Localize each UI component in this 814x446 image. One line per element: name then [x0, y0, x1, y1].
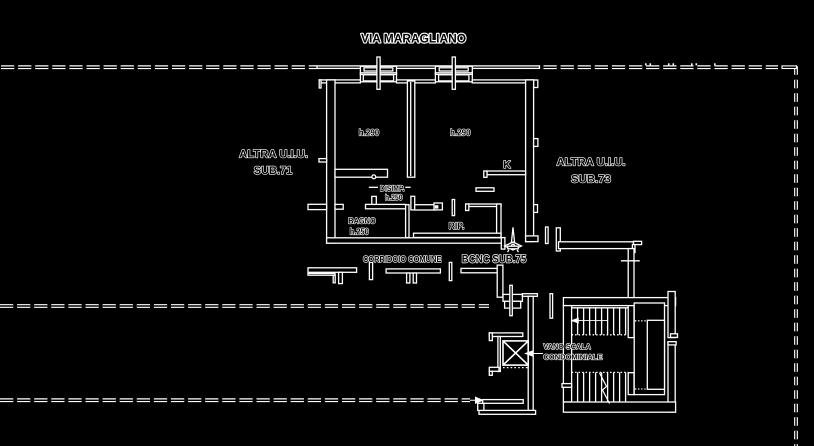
svg-text:CONDOMINIALE: CONDOMINIALE [543, 352, 602, 361]
svg-text:RIP.: RIP. [449, 221, 465, 232]
svg-text:ALTRA U.I.U.: ALTRA U.I.U. [239, 148, 308, 160]
svg-text:h.290: h.290 [359, 128, 380, 138]
svg-text:VANO SCALA: VANO SCALA [543, 342, 591, 351]
svg-text:h.290: h.290 [450, 128, 471, 138]
svg-text:K: K [503, 159, 511, 171]
svg-text:ALTRA U.I.U.: ALTRA U.I.U. [557, 157, 626, 169]
svg-text:h.250: h.250 [385, 193, 403, 202]
svg-text:BAGNO: BAGNO [348, 216, 376, 226]
svg-text:CORRIDOIO COMUNE: CORRIDOIO COMUNE [363, 254, 442, 264]
svg-text:BCNC SUB.75: BCNC SUB.75 [462, 253, 527, 265]
svg-text:DISIMP.: DISIMP. [380, 184, 405, 193]
svg-text:h.250: h.250 [350, 227, 369, 237]
svg-text:VIA MARAGLIANO: VIA MARAGLIANO [361, 32, 466, 46]
svg-text:SUB.71: SUB.71 [254, 165, 293, 177]
svg-text:SUB.73: SUB.73 [571, 174, 611, 186]
